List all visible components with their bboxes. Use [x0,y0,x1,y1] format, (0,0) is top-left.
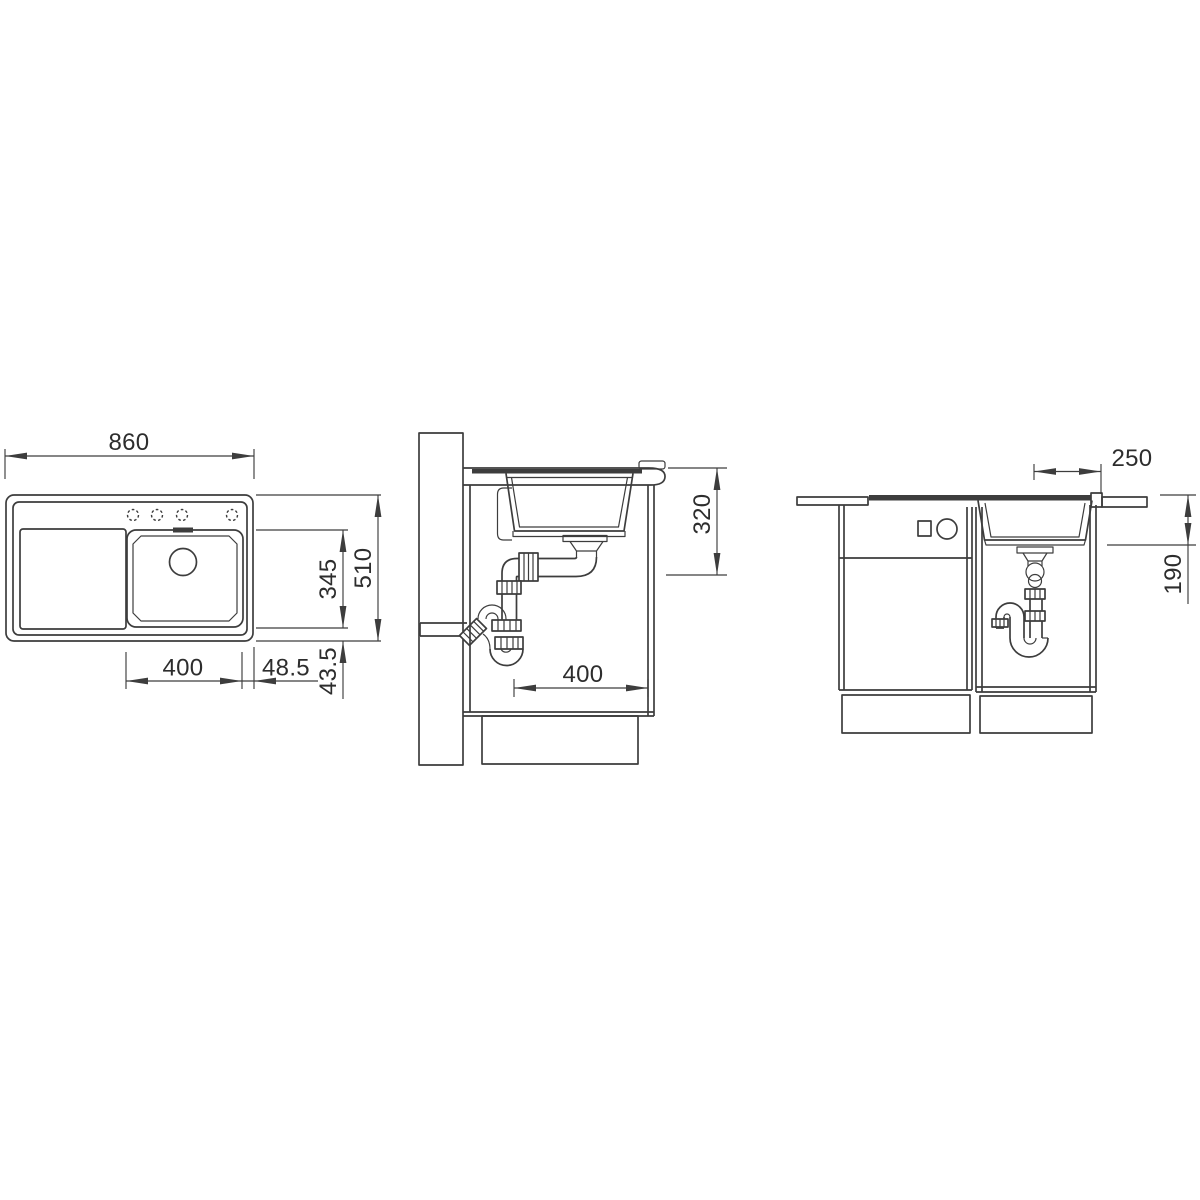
faucet-hole-icon [152,510,163,521]
sink-rim-front [868,495,1091,505]
cabinet-left [839,505,972,733]
compression-nut [497,581,521,594]
plinth-right [980,696,1092,733]
union-nut [492,620,521,631]
dim-drain-offset-label: 400 [563,661,604,688]
section-view: 320 400 [419,433,727,765]
dim-bowl-length: 345 [256,530,348,628]
drainboard [20,529,126,629]
sink-rim-profile [472,469,642,478]
outlet-nut [992,619,1008,627]
sink-edge-tab [1091,493,1102,507]
overflow-slot [173,528,193,533]
trap-nut [495,637,523,649]
dim-underbench-depth-label: 190 [1160,554,1187,595]
dim-overall-width: 860 [5,429,254,479]
dim-offset-bottom-label: 43.5 [315,647,342,695]
dim-underbench-depth: 190 [1107,495,1196,604]
faucet-hole-icon [227,510,238,521]
dim-overall-depth-label: 510 [350,548,377,589]
dim-bowl-length-label: 345 [315,559,342,600]
dim-drain-offset: 400 [514,661,648,697]
appliance-controls [918,519,957,539]
countertop-front-right [1102,497,1147,507]
front-view: 250 190 [797,445,1196,733]
bowl-section [498,474,634,541]
dim-drain-axis: 250 [1034,445,1152,494]
dim-depth-below-worktop: 320 [666,468,727,575]
drain-assembly [497,536,607,621]
plinth-left [842,695,970,733]
dim-drain-axis-label: 250 [1112,445,1153,472]
dim-overall-width-label: 860 [109,429,150,456]
trap-assembly [460,605,523,666]
wall [419,433,463,765]
dim-offset-bottom: 43.5 [315,641,346,699]
dim-bowl-width: 400 [126,652,242,689]
plinth [482,716,638,764]
technical-drawing-svg: 860 345 510 43.5 400 48. [0,0,1200,1200]
dim-depth-below-worktop-label: 320 [689,494,716,535]
drain-hole [170,549,197,576]
faucet-hole-icon [128,510,139,521]
compression-nut [1025,589,1045,599]
faucet-hole-icon [177,510,188,521]
knob-square [918,521,931,536]
bowl [127,528,243,628]
drawing-sheet: 860 345 510 43.5 400 48. [0,0,1200,1200]
trap-nut [1025,611,1045,621]
dim-bowl-width-label: 400 [163,655,204,682]
compression-nut [519,553,538,581]
countertop-front-left [797,497,868,505]
sink-outline [6,495,253,641]
faucet-holes [128,510,238,521]
dim-offset-right: 48.5 [242,647,318,689]
knob-circle [937,519,957,539]
top-view: 860 345 510 43.5 400 48. [5,429,381,699]
dim-offset-right-label: 48.5 [262,655,310,682]
drain-front [1017,547,1053,638]
bowl-front [978,501,1092,546]
